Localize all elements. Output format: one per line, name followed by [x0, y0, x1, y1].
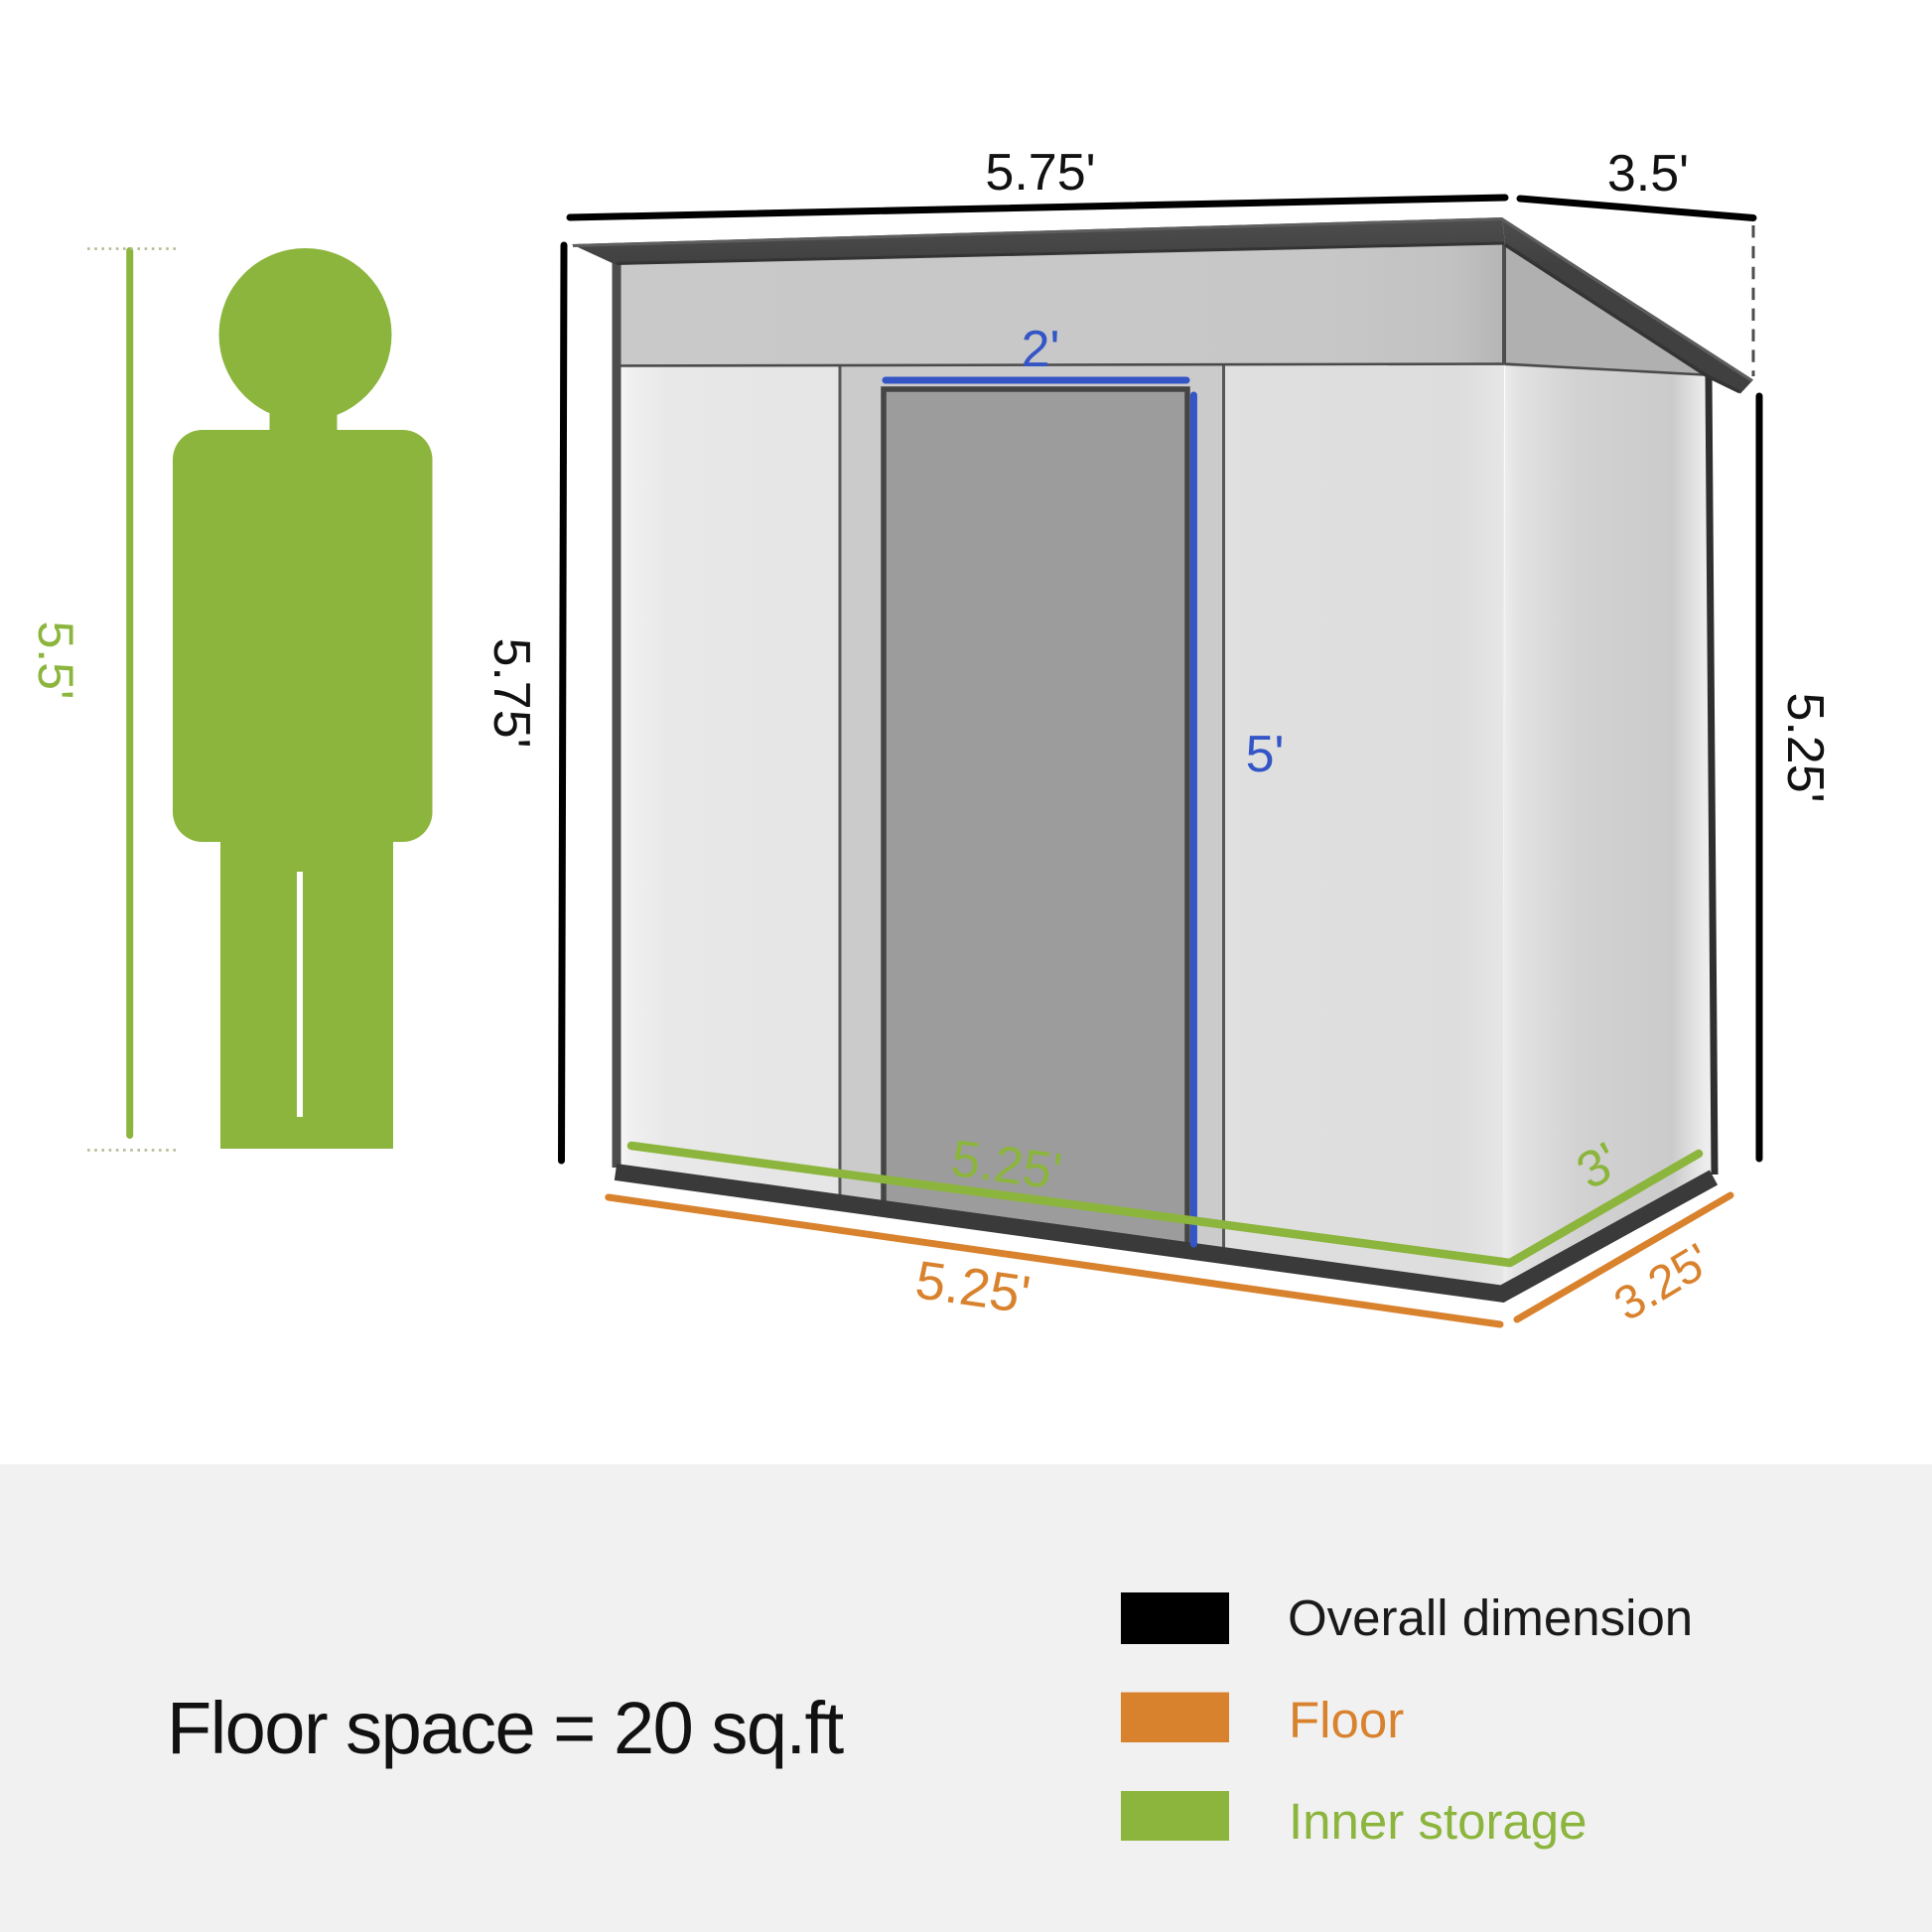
svg-text:5.25': 5.25' — [1776, 692, 1834, 802]
svg-text:5.75': 5.75' — [483, 637, 540, 748]
svg-text:5.5': 5.5' — [28, 621, 83, 699]
svg-text:2': 2' — [1022, 321, 1060, 378]
svg-text:5': 5' — [1246, 726, 1285, 783]
svg-text:Floor: Floor — [1289, 1692, 1404, 1748]
svg-text:Floor space = 20 sq.ft: Floor space = 20 sq.ft — [167, 1687, 845, 1769]
svg-text:5.75': 5.75' — [985, 144, 1095, 202]
svg-text:Overall dimension: Overall dimension — [1288, 1589, 1693, 1646]
svg-text:3.5': 3.5' — [1607, 145, 1689, 203]
svg-text:Inner storage: Inner storage — [1289, 1793, 1587, 1850]
